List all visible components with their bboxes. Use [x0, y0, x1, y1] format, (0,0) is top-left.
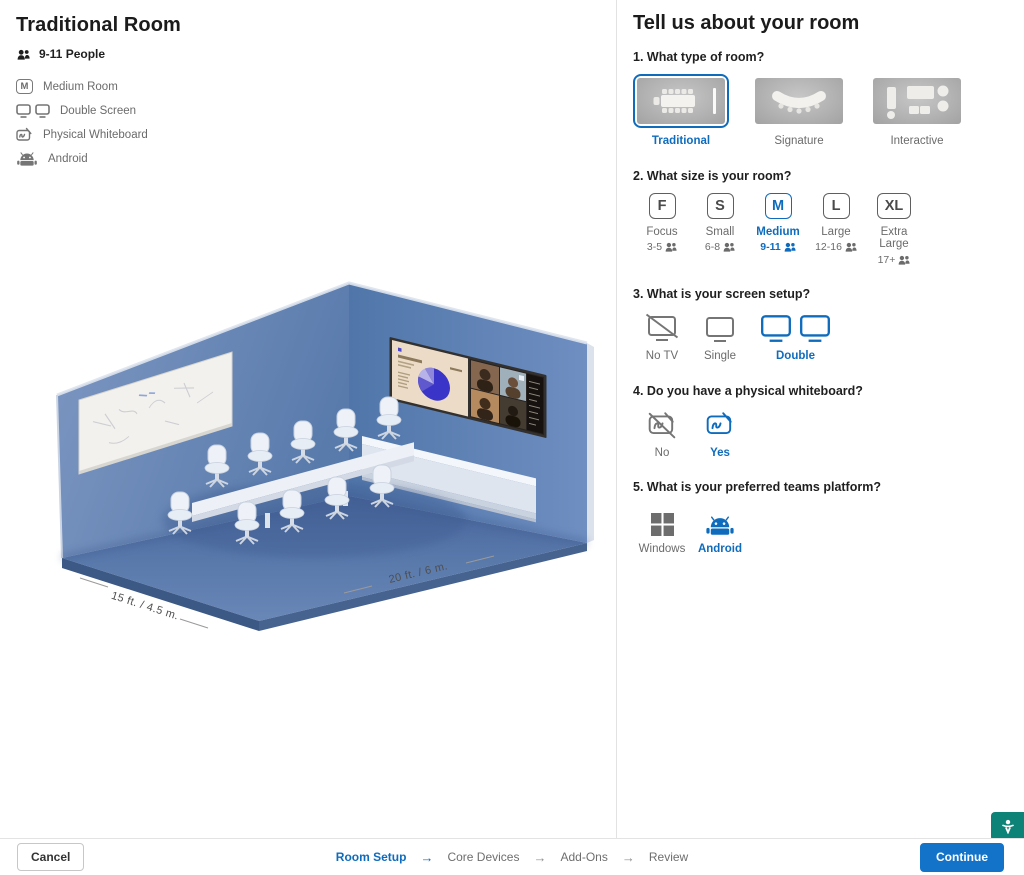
feature-list: M Medium Room Double Screen	[16, 79, 616, 166]
double-screen-icon	[759, 311, 832, 343]
people-icon	[898, 255, 910, 265]
room-size-option-focus[interactable]: F Focus 3-5	[633, 193, 691, 254]
wizard-footer: Cancel Room Setup → Core Devices → Add-O…	[0, 838, 1024, 875]
screen-option-double[interactable]: Double	[749, 311, 842, 363]
question-room-size: 2. What size is your room? F Focus 3-5 S…	[633, 169, 1024, 266]
capacity-label: 9-11 People	[39, 47, 105, 61]
size-letter-box: M	[765, 193, 792, 219]
continue-button[interactable]: Continue	[920, 843, 1004, 872]
question-physical-whiteboard: 4. Do you have a physical whiteboard?	[633, 384, 1024, 460]
main-content: Traditional Room 9-11 People M	[0, 0, 1024, 838]
room-size-option-large[interactable]: L Large 12-16	[807, 193, 865, 254]
question-room-type: 1. What type of room?	[633, 50, 1024, 148]
questionnaire-title: Tell us about your room	[633, 12, 1024, 35]
question-heading: 4. Do you have a physical whiteboard?	[633, 384, 1024, 398]
feature-double-screen: Double Screen	[16, 103, 616, 118]
step-core-devices: Core Devices	[447, 850, 519, 864]
people-icon	[723, 242, 735, 252]
accessibility-icon	[1000, 819, 1016, 834]
whiteboard-option-no[interactable]: No	[633, 408, 691, 460]
whiteboard-option-yes[interactable]: Yes	[691, 408, 749, 460]
room-type-option-signature[interactable]: Signature	[751, 74, 847, 148]
android-icon	[16, 151, 38, 166]
whiteboard-icon	[705, 408, 735, 440]
people-icon	[16, 49, 31, 60]
platform-option-android[interactable]: Android	[691, 504, 749, 556]
feature-physical-whiteboard: Physical Whiteboard	[16, 127, 616, 142]
arrow-right-icon: →	[533, 850, 546, 865]
room-type-option-interactive[interactable]: Interactive	[869, 74, 965, 148]
double-screen-icon	[16, 104, 50, 118]
size-letter-box: F	[649, 193, 676, 219]
room-size-option-small[interactable]: S Small 6-8	[691, 193, 749, 254]
step-review: Review	[649, 850, 688, 864]
signature-room-thumbnail	[755, 78, 843, 124]
room-questionnaire-panel: Tell us about your room 1. What type of …	[617, 0, 1024, 838]
arrow-right-icon: →	[420, 850, 433, 865]
question-screen-setup: 3. What is your screen setup?	[633, 287, 1024, 363]
no-tv-icon	[645, 311, 679, 343]
traditional-room-thumbnail	[637, 78, 725, 124]
breadcrumb: Room Setup → Core Devices → Add-Ons → Re…	[336, 850, 688, 865]
people-icon	[784, 242, 796, 252]
feature-medium-room: M Medium Room	[16, 79, 616, 94]
android-icon	[705, 504, 735, 536]
question-teams-platform: 5. What is your preferred teams platform…	[633, 480, 1024, 556]
whiteboard-icon	[16, 127, 33, 143]
single-screen-icon	[704, 311, 736, 343]
windows-icon	[651, 504, 674, 536]
room-size-option-extra-large[interactable]: XL Extra Large 17+	[865, 193, 923, 266]
room-size-option-medium[interactable]: M Medium 9-11	[749, 193, 807, 254]
size-letter-box: XL	[877, 193, 911, 219]
size-letter-box: S	[707, 193, 734, 219]
platform-option-windows[interactable]: Windows	[633, 504, 691, 556]
people-icon	[665, 242, 677, 252]
step-room-setup[interactable]: Room Setup	[336, 850, 407, 864]
step-add-ons: Add-Ons	[560, 850, 607, 864]
room-3d-visual: 15 ft. / 4.5 m. 20 ft. / 6 m.	[22, 270, 612, 660]
cancel-button[interactable]: Cancel	[17, 843, 84, 871]
feature-android: Android	[16, 151, 616, 166]
question-heading: 2. What size is your room?	[633, 169, 1024, 183]
people-icon	[845, 242, 857, 252]
question-heading: 5. What is your preferred teams platform…	[633, 480, 1024, 494]
room-configurator-app: Traditional Room 9-11 People M	[0, 0, 1024, 875]
screen-option-no-tv[interactable]: No TV	[633, 311, 691, 363]
question-heading: 1. What type of room?	[633, 50, 1024, 64]
room-size-m-icon: M	[16, 79, 33, 94]
screen-option-single[interactable]: Single	[691, 311, 749, 363]
capacity-row: 9-11 People	[16, 47, 616, 61]
accessibility-widget-button[interactable]	[991, 812, 1024, 841]
question-heading: 3. What is your screen setup?	[633, 287, 1024, 301]
size-letter-box: L	[823, 193, 850, 219]
room-type-option-traditional[interactable]: Traditional	[633, 74, 729, 148]
room-summary-panel: Traditional Room 9-11 People M	[0, 0, 617, 838]
page-title: Traditional Room	[16, 14, 616, 37]
arrow-right-icon: →	[622, 850, 635, 865]
interactive-room-thumbnail	[873, 78, 961, 124]
no-whiteboard-icon	[647, 408, 677, 440]
